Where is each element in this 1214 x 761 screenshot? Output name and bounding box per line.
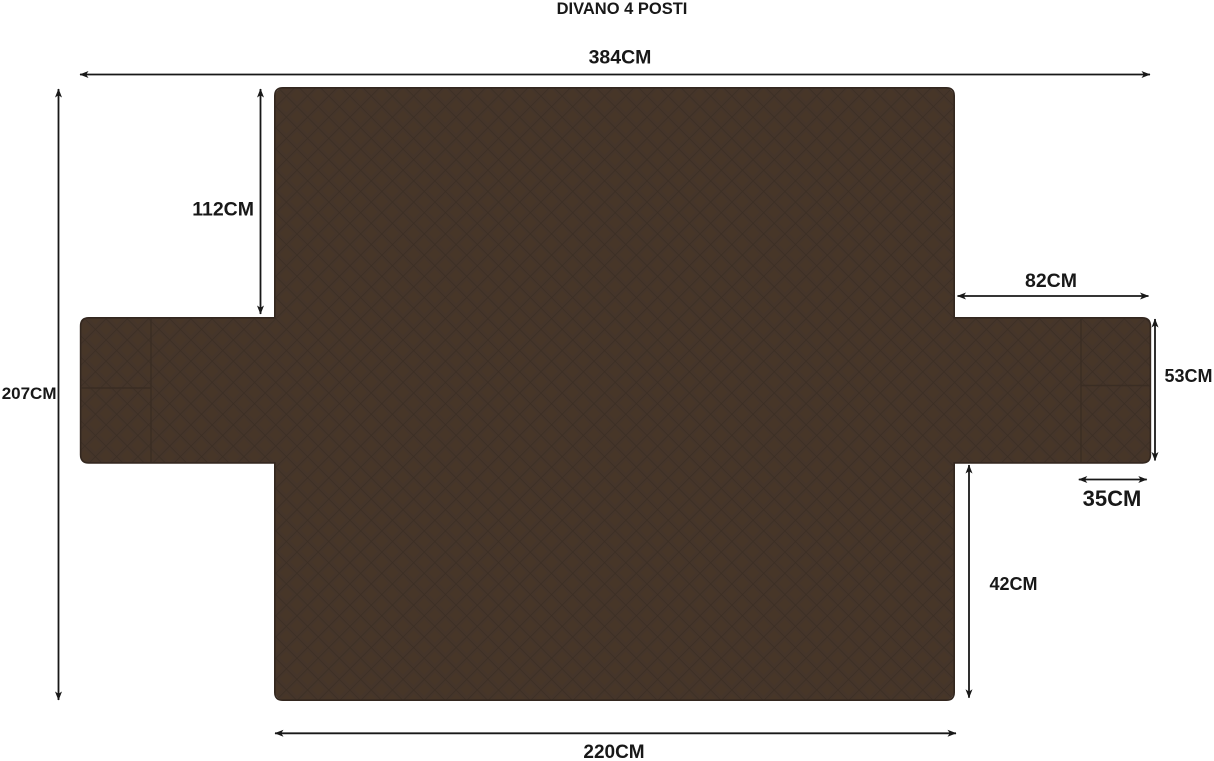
svg-text:112CM: 112CM bbox=[192, 199, 254, 221]
svg-text:384CM: 384CM bbox=[589, 47, 652, 69]
svg-text:82CM: 82CM bbox=[1025, 270, 1077, 292]
svg-text:207CM: 207CM bbox=[2, 384, 57, 403]
svg-text:42CM: 42CM bbox=[990, 574, 1038, 594]
svg-text:220CM: 220CM bbox=[583, 742, 644, 761]
svg-text:35CM: 35CM bbox=[1083, 486, 1142, 511]
svg-text:53CM: 53CM bbox=[1165, 366, 1213, 386]
svg-text:DIVANO 4 POSTI: DIVANO 4 POSTI bbox=[557, 0, 688, 18]
